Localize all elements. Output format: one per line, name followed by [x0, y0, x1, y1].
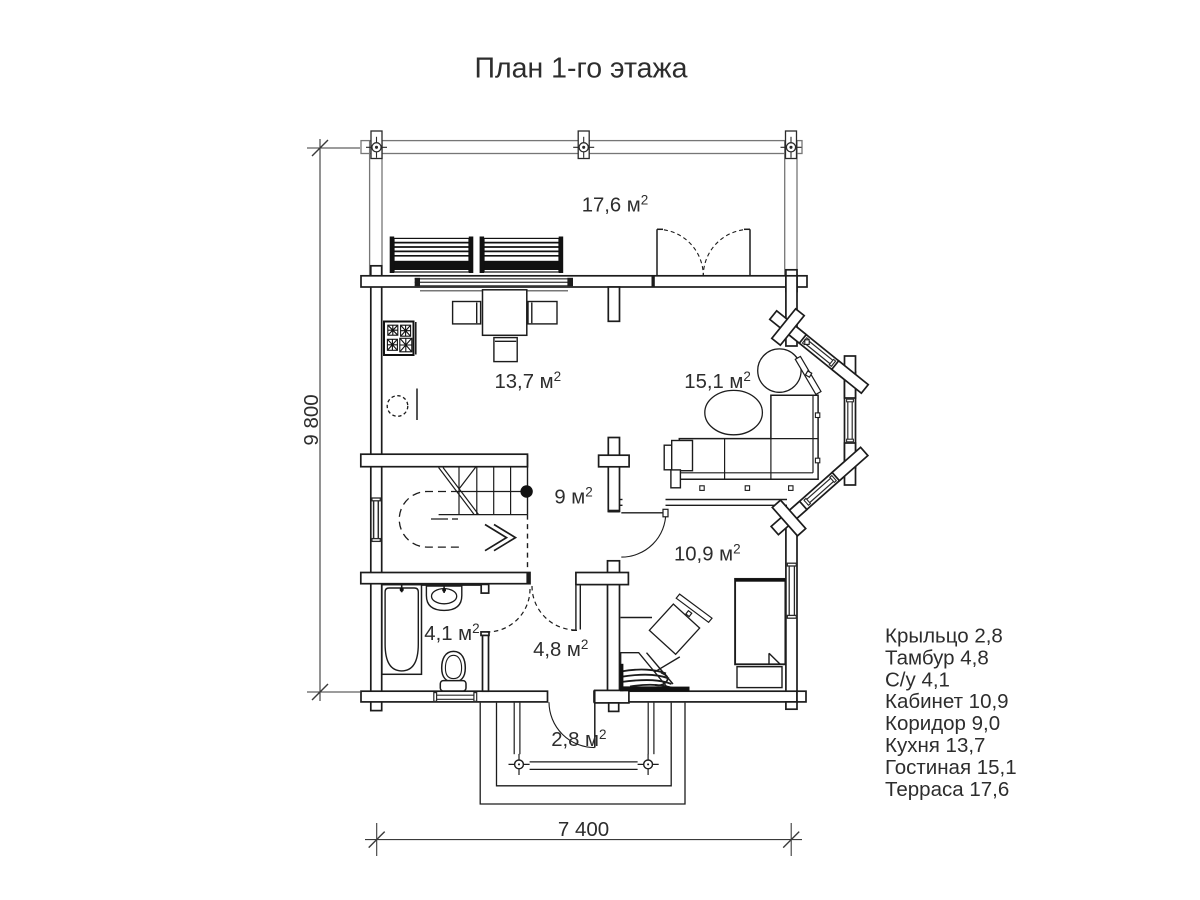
- svg-text:13,7 м2: 13,7 м2: [495, 369, 562, 393]
- svg-text:7 400: 7 400: [558, 818, 609, 841]
- svg-text:4,8 м2: 4,8 м2: [533, 637, 588, 661]
- svg-text:Тамбур 4,8: Тамбур 4,8: [885, 646, 989, 669]
- svg-text:Терраса 17,6: Терраса 17,6: [885, 778, 1009, 801]
- svg-text:15,1 м2: 15,1 м2: [684, 369, 751, 393]
- svg-text:Гостиная 15,1: Гостиная 15,1: [885, 756, 1017, 779]
- svg-text:Кухня 13,7: Кухня 13,7: [885, 734, 985, 757]
- svg-text:9 800: 9 800: [300, 394, 323, 445]
- svg-text:4,1 м2: 4,1 м2: [424, 621, 479, 645]
- svg-text:Кабинет 10,9: Кабинет 10,9: [885, 690, 1009, 713]
- svg-text:17,6 м2: 17,6 м2: [582, 193, 649, 217]
- svg-text:10,9 м2: 10,9 м2: [674, 542, 741, 566]
- svg-text:С/у 4,1: С/у 4,1: [885, 668, 950, 691]
- svg-text:План 1-го этажа: План 1-го этажа: [475, 53, 688, 85]
- svg-text:2,8 м2: 2,8 м2: [551, 727, 606, 751]
- svg-text:Коридор 9,0: Коридор 9,0: [885, 712, 1000, 735]
- svg-text:Крыльцо 2,8: Крыльцо 2,8: [885, 625, 1003, 648]
